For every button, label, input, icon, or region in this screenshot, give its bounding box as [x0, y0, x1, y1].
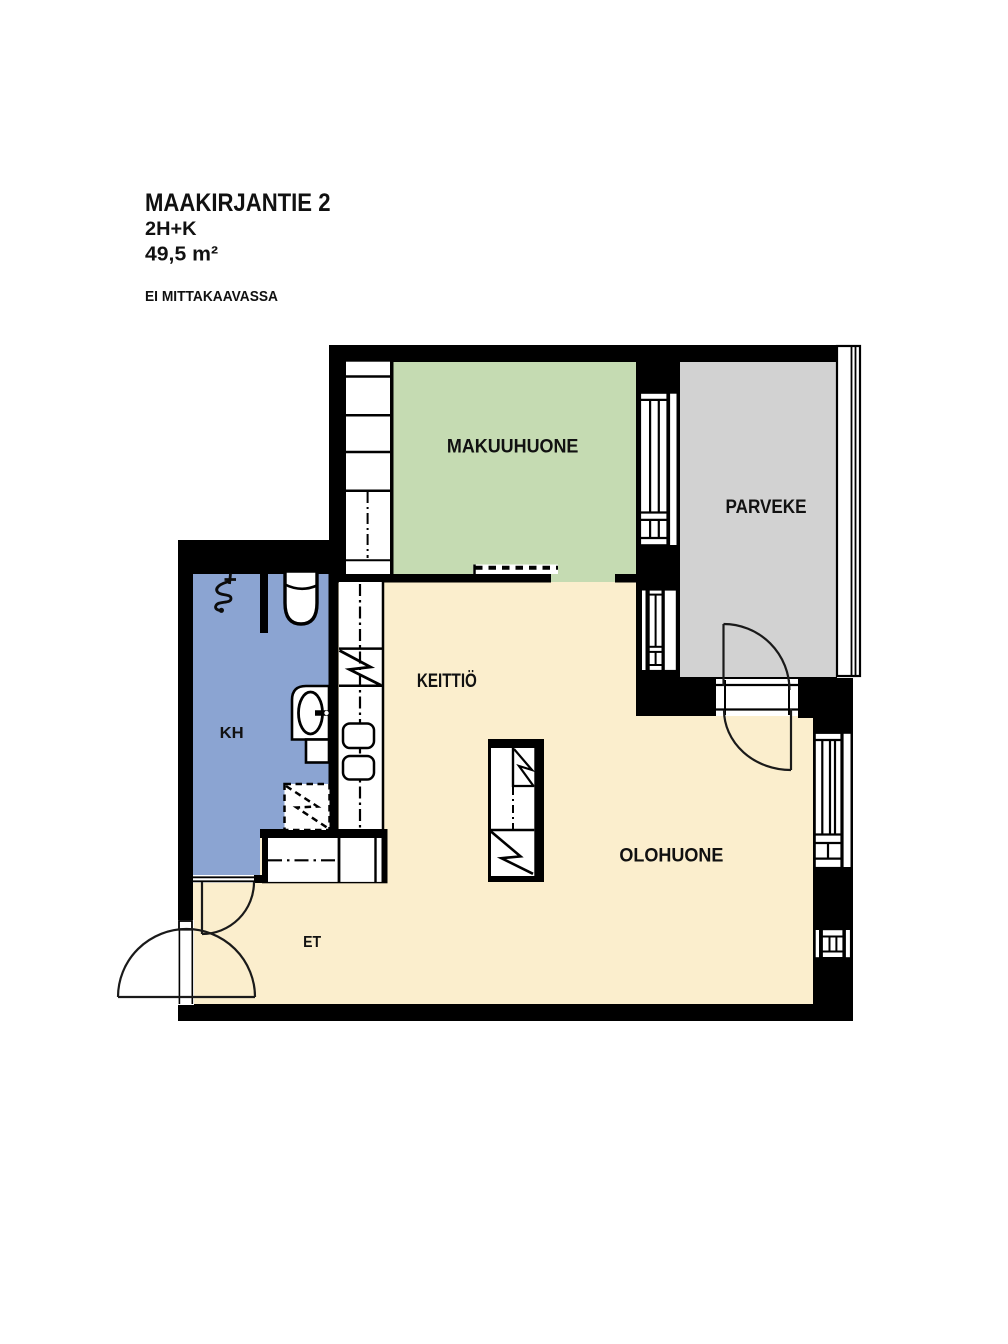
svg-text:KH: KH	[220, 725, 244, 742]
svg-text:MAAKIRJANTIE 2: MAAKIRJANTIE 2	[145, 190, 331, 217]
svg-text:2H+K: 2H+K	[145, 218, 197, 240]
svg-text:49,5 m²: 49,5 m²	[145, 243, 218, 265]
svg-text:OLOHUONE: OLOHUONE	[619, 845, 723, 867]
svg-text:MAKUUHUONE: MAKUUHUONE	[447, 436, 579, 458]
svg-text:KEITTIÖ: KEITTIÖ	[417, 669, 477, 692]
svg-text:EI MITTAKAAVASSA: EI MITTAKAAVASSA	[145, 288, 278, 305]
svg-text:ET: ET	[303, 934, 321, 951]
svg-text:PARVEKE: PARVEKE	[726, 496, 807, 518]
